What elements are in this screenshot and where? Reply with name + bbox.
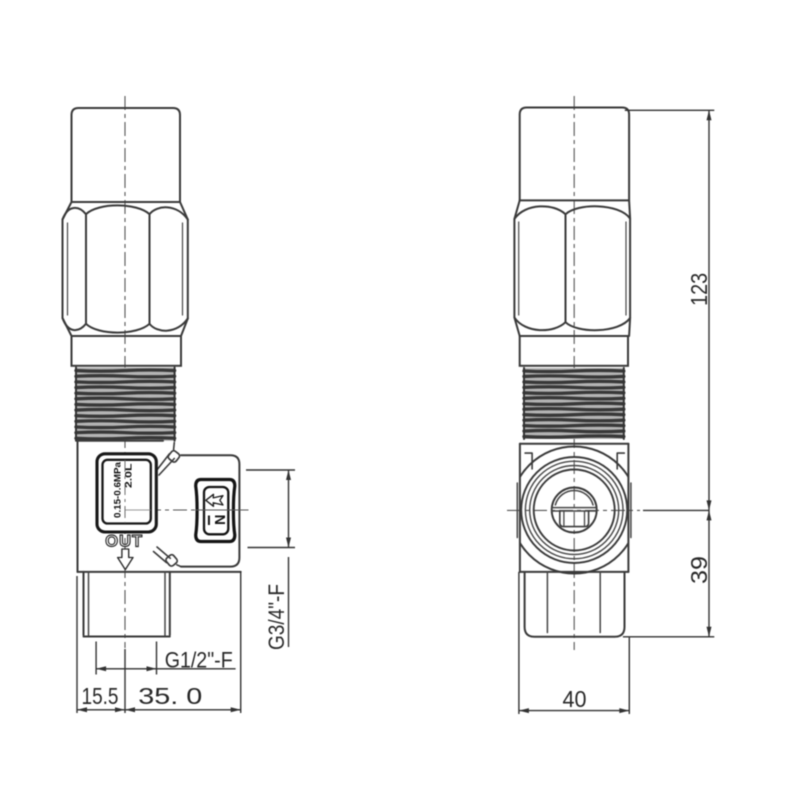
svg-text:40: 40 xyxy=(563,686,587,712)
svg-text:N: N xyxy=(211,514,227,524)
svg-text:0.15-0.6MPa: 0.15-0.6MPa xyxy=(113,461,123,518)
svg-text:35. 0: 35. 0 xyxy=(138,683,202,709)
svg-text:G3/4"-F: G3/4"-F xyxy=(264,584,289,650)
svg-text:39: 39 xyxy=(686,556,712,584)
svg-text:I: I xyxy=(207,512,211,528)
svg-text:G1/2"-F: G1/2"-F xyxy=(165,648,233,673)
svg-text:123: 123 xyxy=(686,273,712,306)
svg-text:15.5: 15.5 xyxy=(82,683,119,709)
svg-text:OUT: OUT xyxy=(105,533,143,551)
